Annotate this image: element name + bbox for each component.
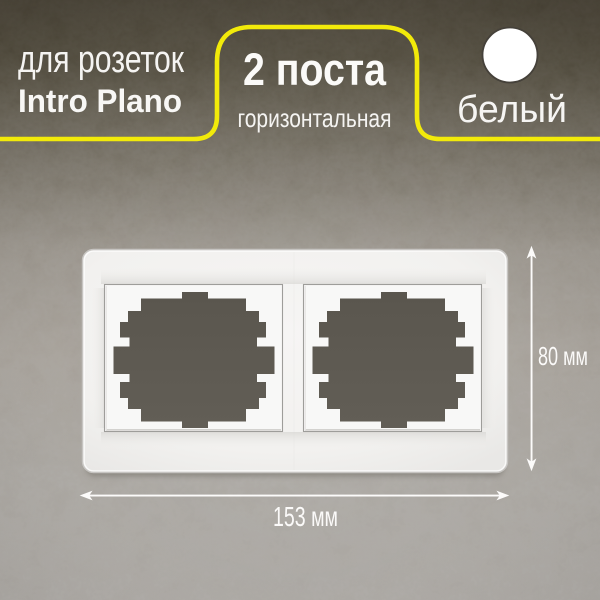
svg-text:для розеток: для розеток	[18, 39, 184, 81]
svg-text:2 поста: 2 поста	[243, 44, 387, 95]
svg-text:153 мм: 153 мм	[273, 501, 338, 532]
svg-text:горизонтальная: горизонтальная	[238, 103, 392, 133]
svg-text:Intro Plano: Intro Plano	[18, 83, 182, 119]
svg-text:80 мм: 80 мм	[538, 341, 588, 371]
svg-text:белый: белый	[457, 89, 567, 131]
